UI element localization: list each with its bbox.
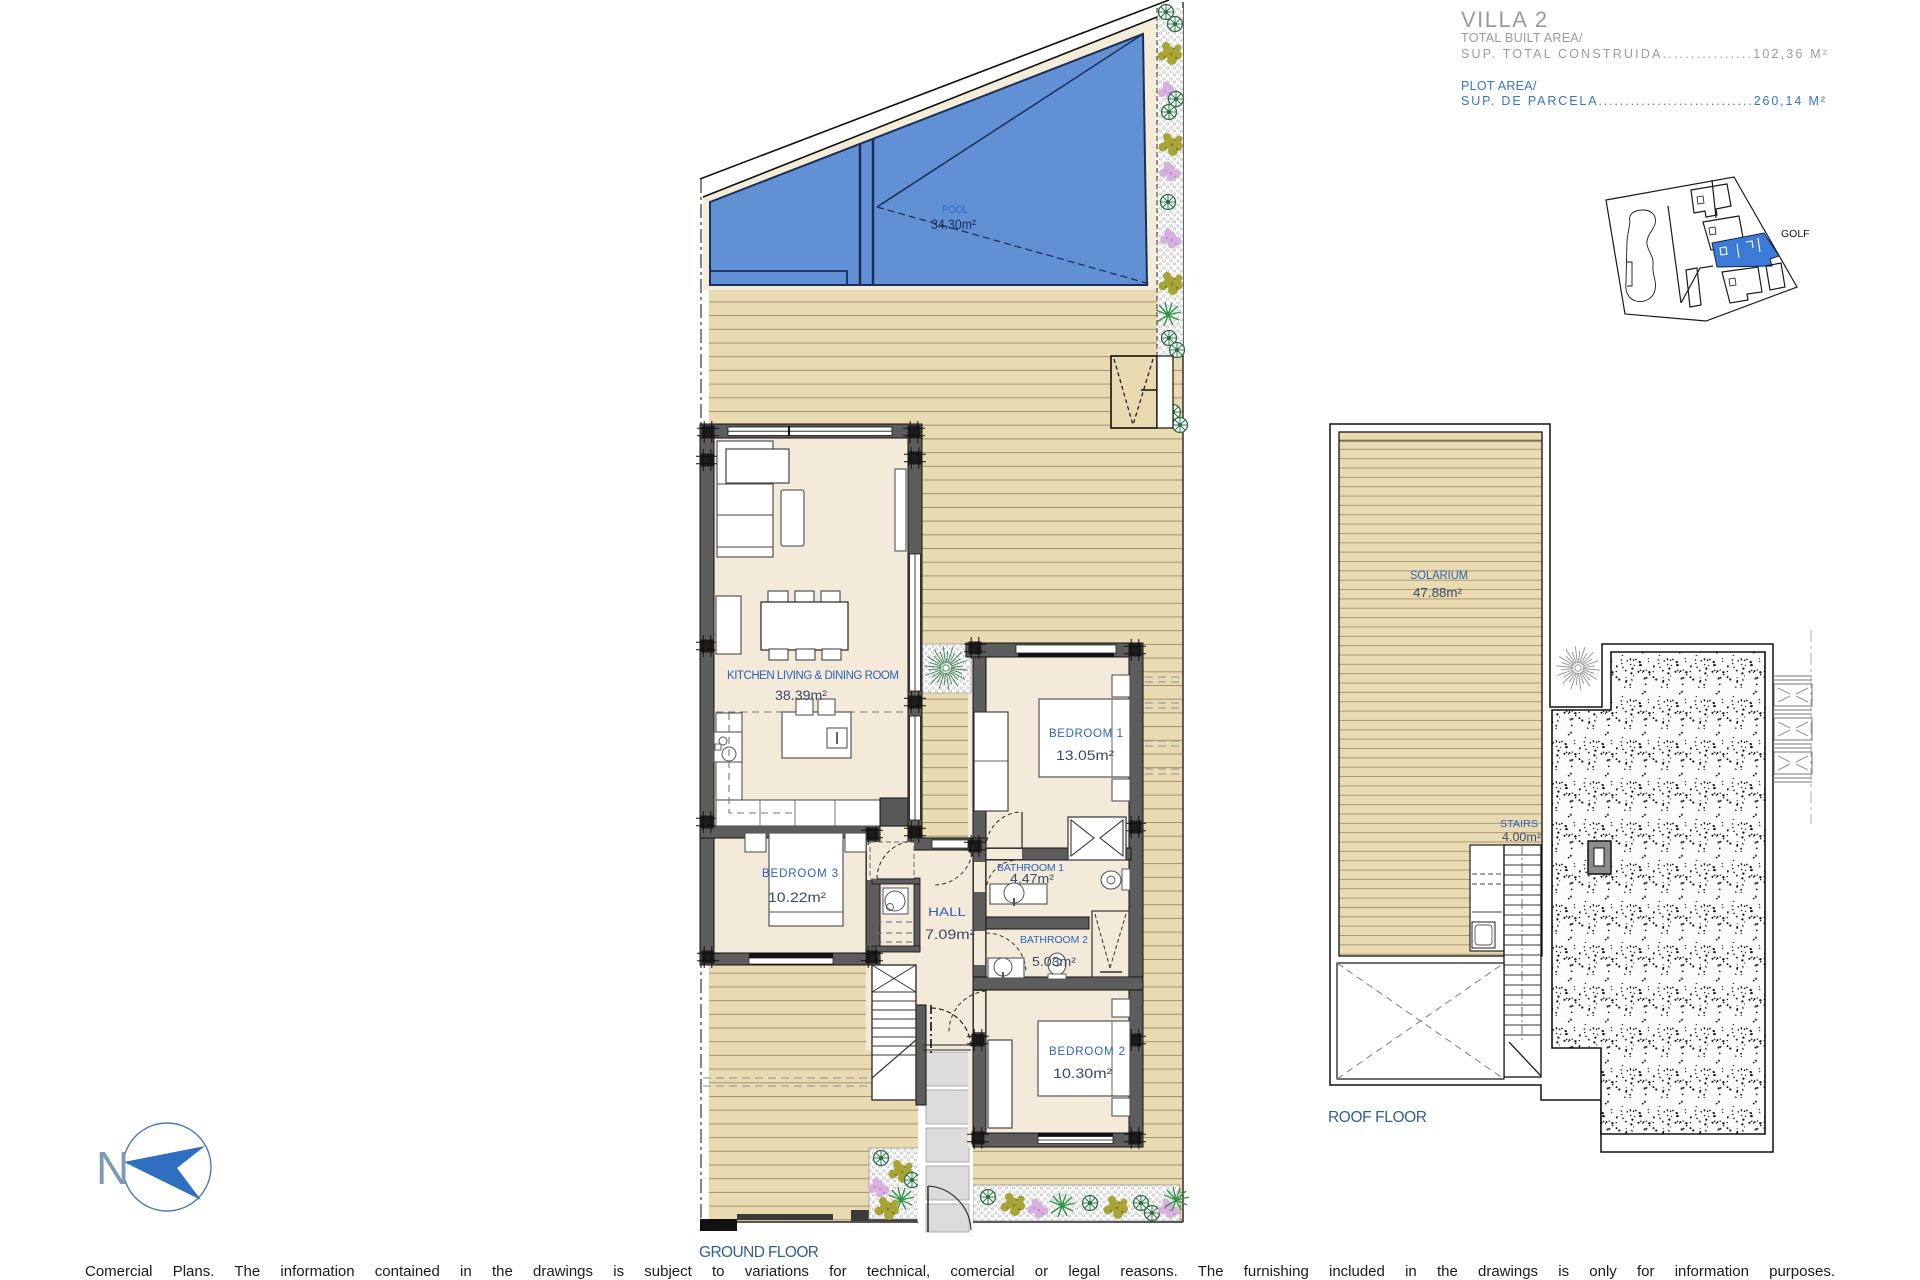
svg-text:VILLA 2: VILLA 2 [1461, 7, 1549, 32]
svg-text:38.39m²: 38.39m² [775, 688, 828, 703]
svg-text:BEDROOM 1: BEDROOM 1 [1049, 728, 1123, 740]
svg-text:10.30m²: 10.30m² [1053, 1066, 1113, 1081]
svg-text:47.88m²: 47.88m² [1413, 586, 1462, 600]
svg-text:13.05m²: 13.05m² [1056, 748, 1115, 763]
svg-text:PLOT AREA/: PLOT AREA/ [1461, 79, 1537, 93]
svg-text:10.22m²: 10.22m² [768, 890, 827, 905]
svg-text:4.00m²: 4.00m² [1502, 832, 1541, 844]
svg-text:KITCHEN LIVING & DINING: KITCHEN LIVING & DINING ROOM [727, 670, 899, 682]
svg-text:BEDROOM 3: BEDROOM 3 [762, 868, 838, 880]
svg-text:STAIRS: STAIRS [1500, 818, 1538, 830]
svg-text:5.03m²: 5.03m² [1032, 955, 1076, 969]
svg-text:TOTAL BUILT AREA/: TOTAL BUILT AREA/ [1461, 31, 1583, 45]
svg-text:BEDROOM 2: BEDROOM 2 [1049, 1046, 1125, 1058]
svg-text:SUP. TOTAL CONSTRUIDA.........: SUP. TOTAL CONSTRUIDA................102… [1461, 47, 1827, 61]
svg-text:N: N [96, 1142, 129, 1194]
svg-text:SUP. DE PARCELA...............: SUP. DE PARCELA.........................… [1461, 94, 1825, 108]
svg-text:34.30m²: 34.30m² [931, 217, 976, 232]
svg-text:SOLARIUM: SOLARIUM [1410, 570, 1468, 582]
svg-text:GOLF: GOLF [1781, 228, 1810, 240]
svg-text:7.09m²: 7.09m² [925, 927, 976, 942]
svg-text:4.47m²: 4.47m² [1010, 872, 1054, 886]
svg-text:POOL: POOL [942, 204, 968, 216]
svg-text:GROUND FLOOR: GROUND FLOOR [699, 1244, 819, 1261]
svg-text:ROOF FLOOR: ROOF FLOOR [1328, 1109, 1427, 1126]
svg-text:BATHROOM 2: BATHROOM 2 [1020, 934, 1088, 946]
svg-text:HALL: HALL [928, 907, 967, 919]
